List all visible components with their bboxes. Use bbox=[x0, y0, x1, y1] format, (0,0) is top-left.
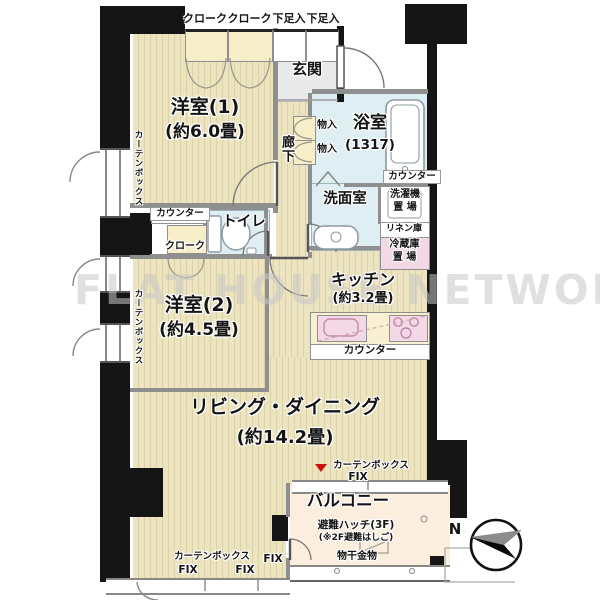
label-balcony: バルコニー bbox=[292, 491, 404, 512]
label-bathroom-name: 浴室 bbox=[334, 113, 406, 134]
label-kitchen-name: キッチン bbox=[310, 270, 416, 290]
label-cloak2: クローク bbox=[227, 12, 272, 26]
label-washer: 洗濯機 置 場 bbox=[384, 189, 426, 214]
floor-plan: クローク クローク 下足入 下足入 玄関 洋室(1) (約6.0畳) カーテンボ… bbox=[0, 0, 600, 600]
label-curtain-box-left1: カーテンボックス bbox=[129, 100, 143, 235]
kitchen-fixtures bbox=[318, 316, 426, 341]
label-escape-hatch-note: (※2F避難はしご) bbox=[297, 533, 415, 544]
label-cloak3: クローク bbox=[161, 241, 209, 254]
label-fix4: FIX bbox=[338, 471, 378, 484]
label-escape-hatch: 避難ハッチ(3F) bbox=[300, 519, 412, 532]
label-curtain-box-left2: カーテンボックス bbox=[129, 266, 143, 388]
label-washroom: 洗面室 bbox=[314, 190, 376, 208]
label-counter-bath: カウンター bbox=[383, 170, 441, 184]
label-laundry-pole: 物干金物 bbox=[316, 551, 398, 564]
label-counter-kitchen: カウンター bbox=[320, 344, 420, 357]
bath-folding-door bbox=[316, 172, 340, 186]
label-bathroom-size: (1317) bbox=[334, 137, 406, 154]
label-living-size: (約14.2畳) bbox=[150, 427, 420, 450]
label-linen: リネン庫 bbox=[380, 224, 428, 235]
label-living-name: リビング・ダイニング bbox=[150, 396, 420, 420]
label-western2-name: 洋室(2) bbox=[133, 294, 265, 318]
label-kitchen-size: (約3.2畳) bbox=[310, 291, 416, 307]
label-fix3: FIX bbox=[257, 553, 289, 566]
label-entrance: 玄関 bbox=[276, 60, 338, 79]
entrance-door bbox=[337, 46, 384, 88]
label-curtain-box-bottom: カーテンボックス bbox=[170, 551, 254, 563]
label-counter-toilet: カウンター bbox=[150, 207, 210, 221]
red-marker-icon bbox=[315, 464, 327, 472]
label-fix1: FIX bbox=[170, 564, 206, 577]
label-western1-size: (約6.0畳) bbox=[135, 122, 275, 143]
label-fridge: 冷蔵庫 置 場 bbox=[382, 239, 427, 264]
washbasin bbox=[314, 226, 358, 249]
label-western2-size: (約4.5畳) bbox=[133, 320, 265, 341]
label-toilet: トイレ bbox=[219, 213, 269, 231]
label-shoe2: 下足入 bbox=[305, 12, 341, 26]
label-cloak1: クローク bbox=[183, 12, 227, 26]
label-shoe1: 下足入 bbox=[271, 12, 307, 26]
label-western1-name: 洋室(1) bbox=[135, 96, 275, 120]
label-corridor: 廊下 bbox=[276, 126, 294, 172]
window-swing-arcs bbox=[70, 152, 158, 600]
compass-icon bbox=[470, 520, 522, 570]
label-compass-north: N bbox=[444, 520, 466, 539]
